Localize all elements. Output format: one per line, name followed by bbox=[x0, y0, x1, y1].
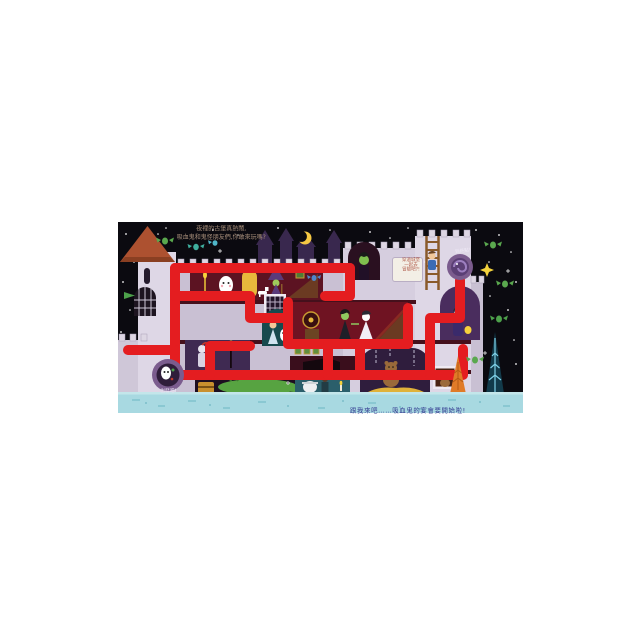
book-page: 夜裡的古堡真熱鬧, 吸血鬼和鬼怪朋友們,你敢來玩嗎? 穿過城堡 一起去 冒險吧?… bbox=[0, 0, 640, 640]
candle-icon bbox=[340, 381, 343, 391]
ballroom bbox=[293, 302, 408, 344]
moat-water bbox=[118, 392, 523, 413]
start-portal-icon bbox=[152, 359, 184, 391]
castle-maze-illustration bbox=[118, 222, 523, 413]
tower-slit-window bbox=[144, 268, 150, 284]
castle-maze-art bbox=[118, 222, 523, 413]
gramophone-icon bbox=[303, 312, 319, 340]
lantern-icon bbox=[465, 326, 472, 334]
finish-portal-icon bbox=[447, 254, 473, 280]
